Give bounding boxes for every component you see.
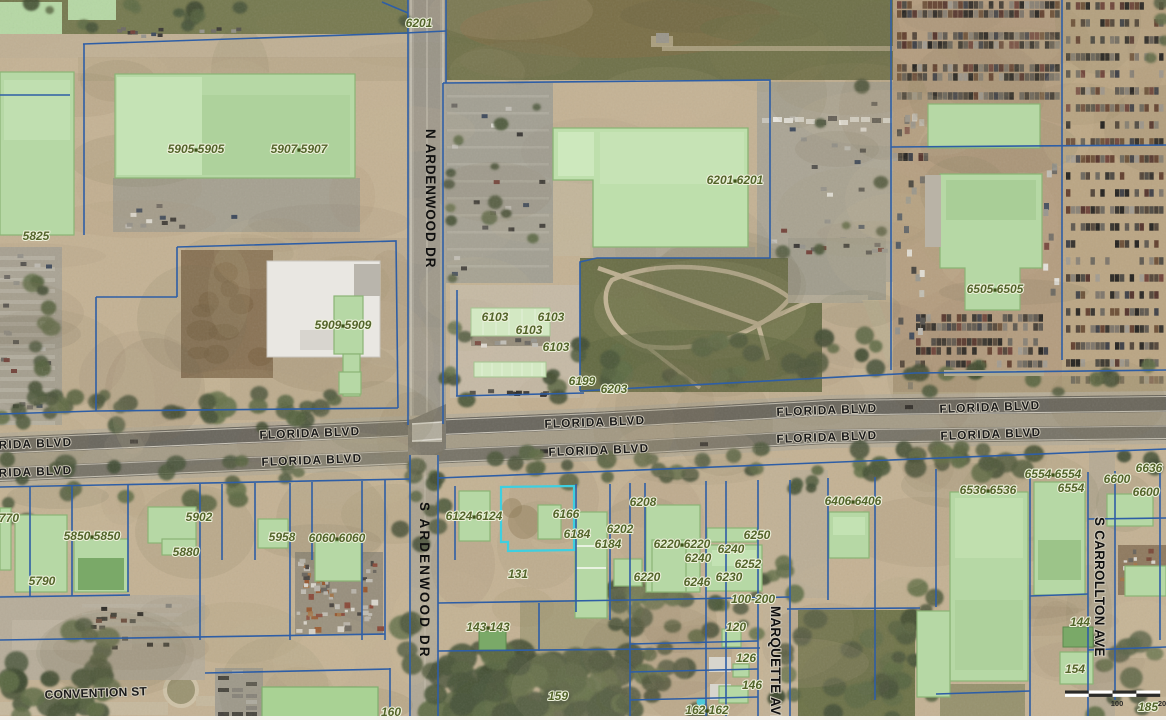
svg-text:6166: 6166 (553, 507, 580, 521)
svg-text:131: 131 (508, 567, 528, 581)
svg-text:6554: 6554 (1058, 481, 1085, 495)
svg-text:154: 154 (1065, 662, 1085, 676)
svg-text:144: 144 (1070, 615, 1090, 629)
svg-text:N ARDENWOOD DR: N ARDENWOOD DR (423, 129, 438, 268)
svg-text:100: 100 (1111, 699, 1124, 708)
svg-text:6252: 6252 (735, 557, 762, 571)
svg-text:770: 770 (0, 511, 19, 525)
svg-text:MARQUETTE AVE: MARQUETTE AVE (768, 606, 783, 720)
svg-text:5880: 5880 (173, 545, 200, 559)
svg-text:6240: 6240 (685, 551, 712, 565)
svg-text:6600: 6600 (1104, 472, 1131, 486)
svg-text:6103: 6103 (543, 340, 570, 354)
svg-text:6201: 6201 (406, 16, 433, 30)
svg-text:6103: 6103 (538, 310, 565, 324)
svg-text:6250: 6250 (744, 528, 771, 542)
svg-text:146: 146 (742, 678, 762, 692)
svg-text:6184: 6184 (564, 527, 591, 541)
svg-text:6246: 6246 (684, 575, 711, 589)
svg-text:6240: 6240 (718, 542, 745, 556)
svg-text:6208: 6208 (630, 495, 657, 509)
svg-text:5902: 5902 (186, 510, 213, 524)
svg-text:5958: 5958 (269, 530, 296, 544)
svg-text:126: 126 (736, 651, 756, 665)
svg-text:6220: 6220 (634, 570, 661, 584)
svg-text:185: 185 (1138, 700, 1158, 714)
svg-text:5825: 5825 (23, 229, 50, 243)
svg-text:159: 159 (548, 689, 568, 703)
svg-text:6203: 6203 (601, 382, 628, 396)
svg-text:S ARDENWOOD DR: S ARDENWOOD DR (417, 502, 432, 659)
svg-text:6103: 6103 (482, 310, 509, 324)
svg-text:5790: 5790 (29, 574, 56, 588)
svg-text:6636: 6636 (1136, 461, 1163, 475)
svg-text:20: 20 (1158, 699, 1166, 708)
svg-text:100-200: 100-200 (731, 592, 775, 606)
svg-text:6230: 6230 (716, 570, 743, 584)
svg-text:6199: 6199 (569, 374, 596, 388)
svg-text:6184: 6184 (595, 537, 622, 551)
svg-text:6600: 6600 (1133, 485, 1160, 499)
svg-text:120: 120 (726, 620, 746, 634)
svg-text:6202: 6202 (607, 522, 634, 536)
svg-text:6103: 6103 (516, 323, 543, 337)
svg-text:S CARROLLTON AVE: S CARROLLTON AVE (1092, 517, 1107, 657)
